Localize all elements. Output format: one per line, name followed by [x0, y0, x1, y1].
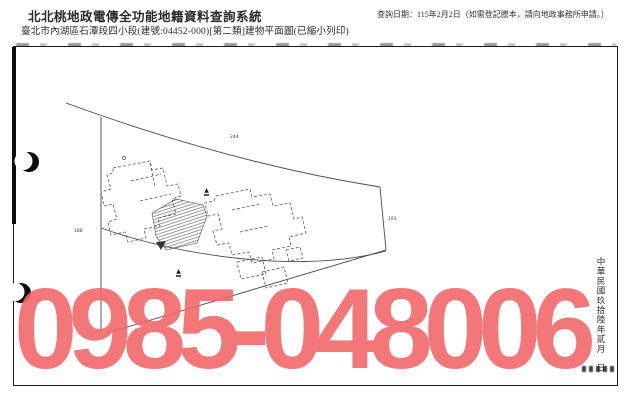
phone-number-watermark: 0985-048006 [14, 273, 634, 387]
lot-number-label: 191 [388, 217, 397, 222]
survey-marker-symbol: ▲ [204, 187, 209, 194]
hatched-subject-area [152, 199, 207, 250]
survey-marker-number [204, 194, 209, 196]
scanned-document-page: { "header": { "system_title": "北北桃地政電傳全功… [0, 0, 640, 410]
punch-hole-crescent-icon [15, 152, 40, 172]
survey-marker-icon: ▲ [204, 188, 209, 196]
lot-number-label: 188 [74, 229, 83, 234]
lot-number-label: 244 [230, 135, 239, 140]
